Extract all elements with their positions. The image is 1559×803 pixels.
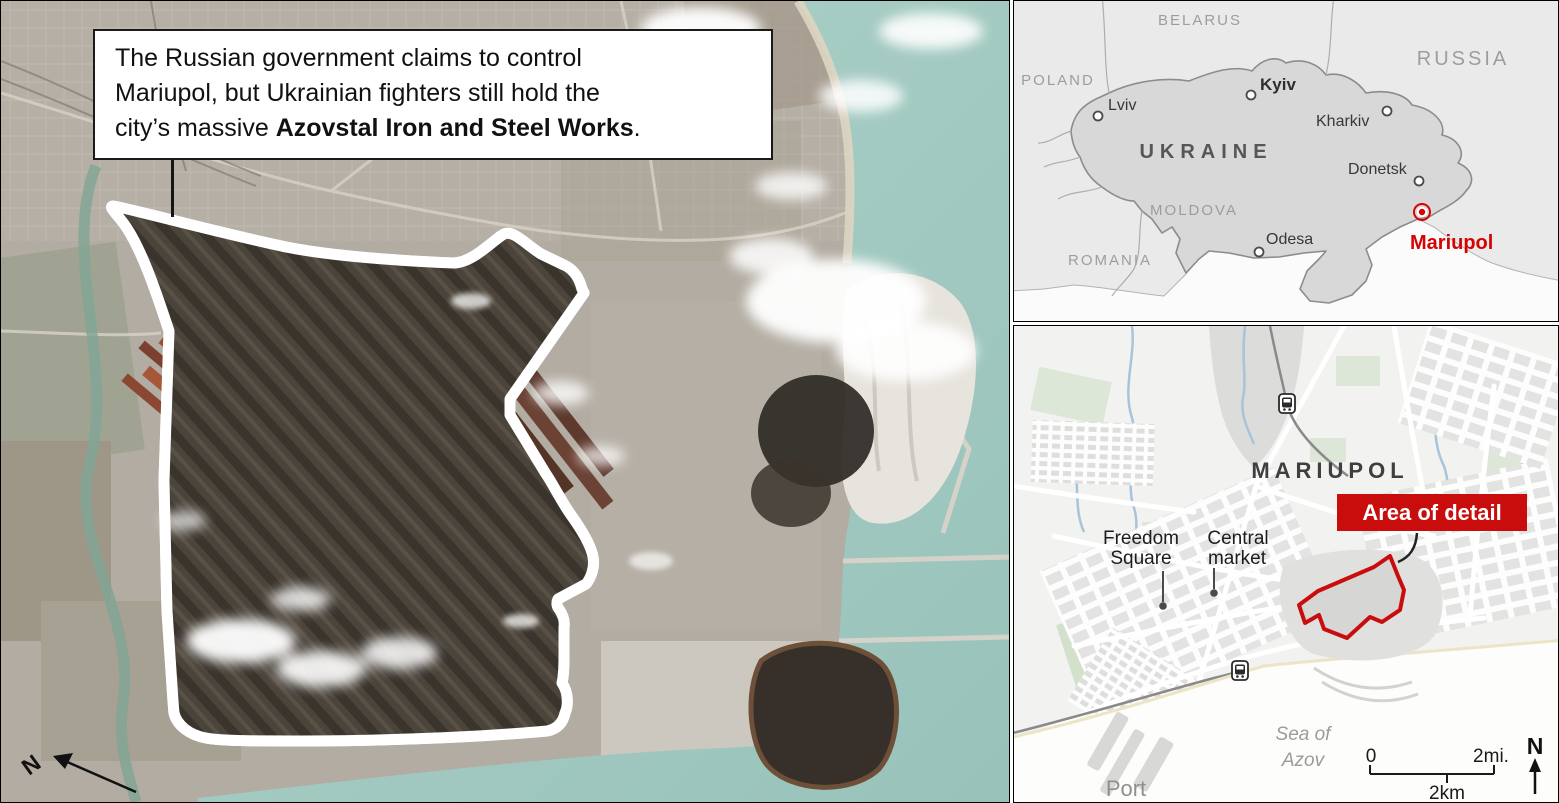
caption-line-3-regular: city’s massive: [115, 114, 276, 142]
mariupol-graphic: N The Russian government claims to contr…: [0, 0, 1559, 803]
caption-line-2: Mariupol, but Ukrainian fighters still h…: [115, 76, 751, 111]
ukraine-map: BELARUS RUSSIA POLAND UKRAINE MOLDOVA RO…: [1014, 1, 1558, 321]
label-azov: Azov: [1281, 750, 1326, 771]
dark-heap-2: [751, 459, 831, 527]
label-kharkiv: Kharkiv: [1316, 113, 1369, 130]
scale-zero: 0: [1366, 746, 1377, 767]
area-of-detail-label: Area of detail: [1362, 500, 1501, 525]
detail-map: MARIUPOL Area of detail Freedom Square C…: [1014, 326, 1558, 802]
satellite-panel: N The Russian government claims to contr…: [0, 0, 1010, 803]
detail-map-panel: MARIUPOL Area of detail Freedom Square C…: [1013, 325, 1559, 803]
caption-line-1: The Russian government claims to control: [115, 41, 751, 76]
kharkiv-dot: [1383, 107, 1392, 116]
lviv-dot: [1094, 112, 1103, 121]
caption-line-3: city’s massive Azovstal Iron and Steel W…: [115, 111, 751, 146]
scale-miles: 2mi.: [1473, 746, 1509, 767]
train-station-icon-south: [1232, 661, 1248, 680]
label-mariupol-city: MARIUPOL: [1251, 458, 1408, 483]
label-ukraine: UKRAINE: [1139, 141, 1272, 163]
label-lviv: Lviv: [1108, 97, 1136, 114]
label-sea-of: Sea of: [1276, 724, 1333, 745]
label-belarus: BELARUS: [1158, 12, 1242, 29]
label-romania: ROMANIA: [1068, 252, 1152, 269]
label-square: Square: [1110, 548, 1171, 569]
label-central: Central: [1207, 528, 1268, 549]
label-freedom: Freedom: [1103, 528, 1179, 549]
district-west-grid: [1031, 420, 1155, 486]
label-poland: POLAND: [1021, 72, 1095, 89]
ukraine-map-panel: BELARUS RUSSIA POLAND UKRAINE MOLDOVA RO…: [1013, 0, 1559, 322]
detail-north-label: N: [1527, 733, 1544, 759]
label-kyiv: Kyiv: [1260, 75, 1296, 94]
train-station-icon-north: [1279, 394, 1295, 413]
label-donetsk: Donetsk: [1348, 161, 1408, 178]
freedom-square-dot: [1159, 602, 1167, 610]
scale-km: 2km: [1429, 783, 1465, 802]
label-market: market: [1208, 548, 1267, 569]
dark-pond: [751, 643, 897, 787]
donetsk-dot: [1415, 177, 1424, 186]
label-russia: RUSSIA: [1417, 48, 1509, 70]
odesa-dot: [1255, 248, 1264, 257]
label-moldova: MOLDOVA: [1150, 202, 1238, 219]
caption-line-3-period: .: [634, 114, 641, 142]
caption-line-3-bold: Azovstal Iron and Steel Works: [276, 114, 634, 142]
label-odesa: Odesa: [1266, 231, 1313, 248]
label-port: Port: [1106, 776, 1146, 801]
caption-box: The Russian government claims to control…: [93, 29, 773, 160]
central-market-dot: [1210, 589, 1218, 597]
kyiv-dot: [1247, 91, 1256, 100]
label-mariupol: Mariupol: [1410, 232, 1493, 254]
